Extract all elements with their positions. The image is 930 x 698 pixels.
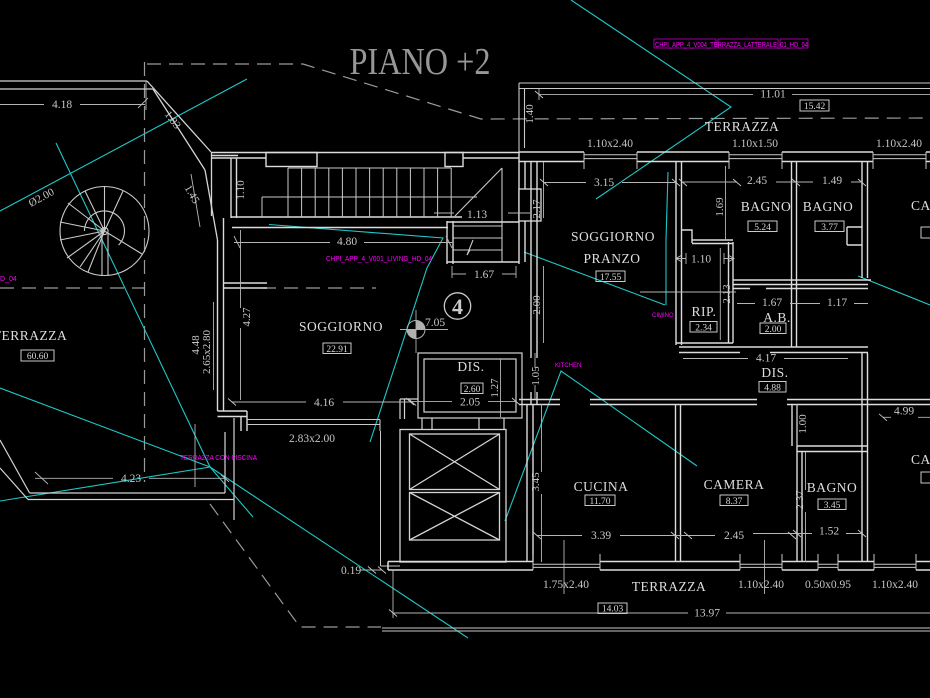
svg-text:BAGNO: BAGNO [807,480,858,495]
svg-text:SOGGIORNO: SOGGIORNO [299,319,383,334]
svg-text:1.10x2.40: 1.10x2.40 [738,579,784,591]
svg-text:2.17: 2.17 [531,199,543,219]
svg-text:1.10x2.40: 1.10x2.40 [872,579,918,591]
svg-text:2.45: 2.45 [747,175,767,187]
svg-text:2.45: 2.45 [724,530,744,542]
svg-text:7.05: 7.05 [425,317,445,329]
svg-text:4: 4 [452,294,463,319]
svg-text:1.10x2.40: 1.10x2.40 [876,138,922,150]
svg-text:5.24: 5.24 [754,223,771,233]
svg-text:4.99: 4.99 [894,406,914,418]
svg-text:CIMINO: CIMINO [652,313,674,319]
svg-text:SOGGIORNO: SOGGIORNO [571,229,655,244]
svg-text:4.23: 4.23 [121,473,141,485]
svg-text:4.27: 4.27 [241,307,253,327]
svg-text:1.67: 1.67 [474,269,494,281]
svg-text:PIANO +2: PIANO +2 [349,41,490,83]
svg-text:13.97: 13.97 [694,608,720,620]
svg-text:4.18: 4.18 [52,99,72,111]
svg-text:D_04: D_04 [0,276,17,283]
svg-text:CUCINA: CUCINA [574,479,629,494]
svg-text:TERRAZZA CON PISCINA: TERRAZZA CON PISCINA [180,455,257,462]
svg-text:2.00: 2.00 [765,325,782,335]
svg-text:KITCHEN: KITCHEN [555,363,581,369]
svg-text:2.37: 2.37 [794,490,806,510]
svg-text:BAGNO: BAGNO [803,199,854,214]
svg-text:2.13: 2.13 [721,284,733,304]
svg-text:1.67: 1.67 [762,297,782,309]
svg-text:2.00: 2.00 [531,295,543,315]
svg-text:1.49: 1.49 [822,175,842,187]
svg-text:2.34: 2.34 [695,324,712,334]
svg-text:11.01: 11.01 [760,89,786,101]
svg-text:0.19: 0.19 [341,565,361,577]
svg-text:1.27: 1.27 [489,378,501,398]
svg-text:3.15: 3.15 [594,177,614,189]
svg-text:1.17: 1.17 [827,297,847,309]
svg-text:4.88: 4.88 [764,384,781,394]
svg-text:1.69: 1.69 [714,197,726,217]
svg-text:1.75x2.40: 1.75x2.40 [543,579,589,591]
svg-text:0.50x0.95: 0.50x0.95 [805,579,851,591]
svg-text:17.55: 17.55 [600,273,622,283]
svg-text:CHPI_APP_4_V001_LIVING_HD_04: CHPI_APP_4_V001_LIVING_HD_04 [326,256,432,263]
svg-text:CA: CA [911,452,930,467]
svg-text:2.05: 2.05 [460,397,480,409]
svg-text:22.91: 22.91 [326,345,348,355]
svg-text:4.16: 4.16 [314,397,334,409]
svg-text:3.77: 3.77 [821,223,838,233]
svg-text:1.10x2.40: 1.10x2.40 [587,138,633,150]
svg-text:3.45: 3.45 [824,501,841,511]
svg-text:DIS.: DIS. [761,365,788,380]
svg-text:RIP.: RIP. [692,304,717,319]
svg-text:8.37: 8.37 [726,497,743,507]
svg-text:CA: CA [911,198,930,213]
svg-text:1.10: 1.10 [235,180,247,200]
svg-text:TERRAZZA: TERRAZZA [705,119,780,134]
svg-text:CAMERA: CAMERA [704,477,765,492]
svg-text:3.39: 3.39 [591,530,611,542]
svg-text:3.45: 3.45 [530,472,542,492]
svg-text:15.42: 15.42 [804,102,826,112]
svg-text:14.03: 14.03 [602,605,624,615]
svg-text:2.60: 2.60 [464,385,481,395]
svg-text:TERRAZZA: TERRAZZA [632,579,707,594]
svg-text:BAGNO: BAGNO [741,199,792,214]
svg-text:11.70: 11.70 [589,497,610,507]
svg-text:2.83x2.00: 2.83x2.00 [289,433,335,445]
svg-text:DIS.: DIS. [457,359,484,374]
svg-text:1.13: 1.13 [467,209,487,221]
svg-text:1.40: 1.40 [524,104,536,124]
svg-text:PRANZO: PRANZO [583,251,640,266]
svg-text:60.60: 60.60 [27,352,49,362]
svg-text:1.10: 1.10 [691,254,711,266]
svg-text:1.00: 1.00 [797,414,809,434]
svg-text:1.52: 1.52 [819,526,839,538]
svg-text:1.05: 1.05 [530,366,542,386]
svg-text:4.17: 4.17 [756,353,776,365]
svg-text:2.65x2.80: 2.65x2.80 [201,330,213,375]
svg-text:TERRAZZA: TERRAZZA [0,328,67,343]
svg-text:4.80: 4.80 [337,236,357,248]
svg-text:1.10x1.50: 1.10x1.50 [732,138,778,150]
